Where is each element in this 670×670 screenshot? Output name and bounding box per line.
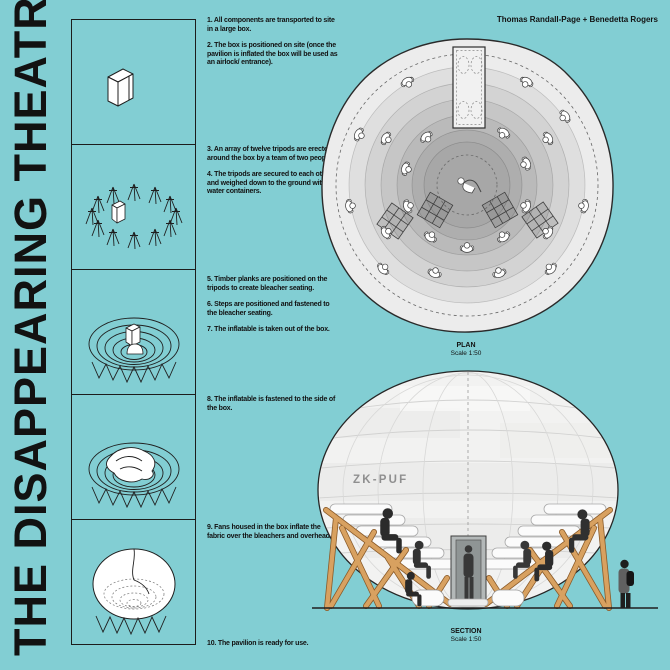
poster-title: THE DISAPPEARING THEATRE (8, 6, 53, 656)
author-credit: Thomas Randall-Page + Benedetta Rogers (420, 15, 658, 24)
tripod-ring-illustration (72, 145, 195, 269)
section-drawing: ZK-PUF (300, 368, 670, 613)
inflated-dome-illustration (72, 520, 195, 644)
step-panel-1 (71, 19, 196, 145)
plan-label: PLAN Scale 1:50 (311, 342, 621, 358)
bleacher-ring-box-illustration (72, 270, 195, 394)
step-panel-4 (71, 394, 196, 520)
airlock-box (453, 47, 485, 128)
section-label: SECTION Scale 1:50 (301, 628, 631, 644)
section-title: SECTION (301, 628, 631, 636)
poster: THE DISAPPEARING THEATRE Thomas Randall-… (0, 0, 670, 670)
plan-drawing (315, 30, 625, 337)
step-panel-column (71, 19, 196, 645)
bleacher-ring-inflatable-illustration (72, 395, 195, 519)
step-panel-3 (71, 269, 196, 395)
shipping-box-illustration (72, 20, 195, 144)
standing-figure (619, 560, 635, 609)
step-panel-2 (71, 144, 196, 270)
airlock-doorway (451, 536, 486, 601)
plan-title: PLAN (311, 342, 621, 350)
section-scale: Scale 1:50 (301, 636, 631, 644)
step-panel-5 (71, 519, 196, 645)
plan-scale: Scale 1:50 (311, 350, 621, 358)
dome-label-text: ZK-PUF (353, 474, 408, 486)
